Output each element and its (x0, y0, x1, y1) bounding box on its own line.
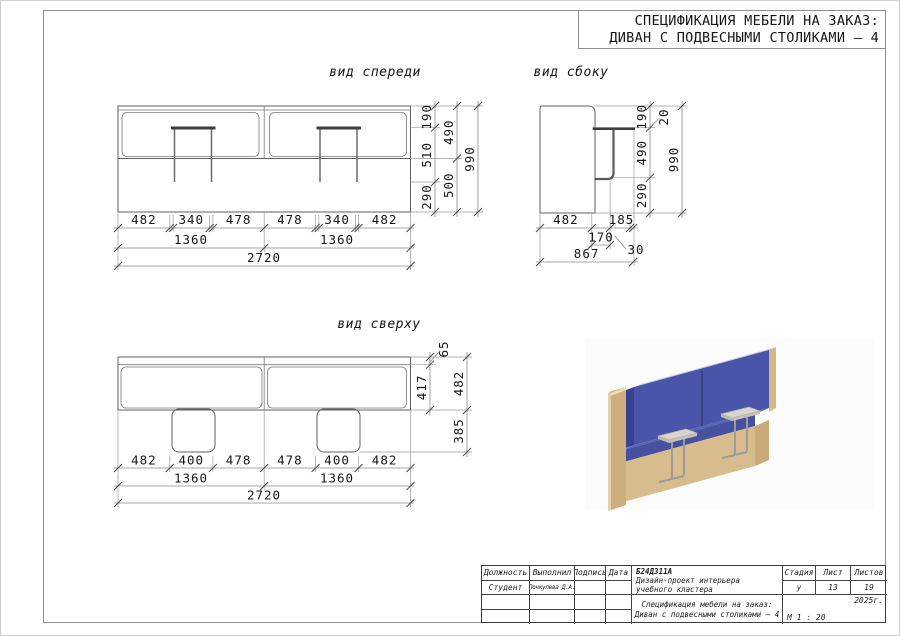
dim-label: 1360 (320, 232, 354, 247)
tb-empty-cell (606, 595, 632, 610)
dim-label: 30 (627, 242, 644, 257)
hanging-table-outline (317, 409, 360, 452)
dim-label: 400 (324, 453, 350, 468)
tb-header-date: Дата (606, 566, 632, 581)
dim-label: 417 (414, 375, 429, 401)
dim-label: 478 (226, 453, 252, 468)
hanging-table-top (593, 127, 635, 130)
dim-label: 482 (451, 371, 466, 397)
front-view-drawing (118, 106, 411, 212)
side-view: вид сбоку 190 20 490 290 990 482 185 170… (505, 55, 705, 285)
dim-label: 482 (372, 212, 398, 227)
dim-label: 867 (574, 246, 600, 261)
tb-sheet-title-cell: Спецификация мебели на заказ: Диван с по… (632, 595, 783, 624)
tb-name-value: Почкулева Д.А. (530, 581, 575, 596)
dim-label: 2720 (247, 488, 281, 503)
tb-project-cell: Б24Д311А Дизайн-проект интерьера учебног… (632, 566, 783, 595)
tb-header-stage: Стадия (783, 566, 816, 581)
front-view-dimensions: 190 510 290 490 500 990 482 340 478 478 … (114, 101, 483, 270)
dim-label: 340 (324, 212, 350, 227)
tb-date-value (606, 581, 632, 596)
tb-role-value: Студент (482, 581, 530, 596)
dim-label: 1360 (320, 471, 354, 486)
dim-label: 290 (634, 183, 649, 209)
hanging-table-top (317, 127, 362, 130)
sheet-title-line1: СПЕЦИФИКАЦИЯ МЕБЕЛИ НА ЗАКАЗ: (579, 13, 879, 30)
top-view-dimensions: 65 417 482 385 482 400 478 478 400 482 1… (114, 340, 472, 507)
title-block: Должность Выполнил Подпись Дата Студент … (481, 565, 886, 623)
dim-label: 500 (441, 172, 456, 198)
tb-header-signature: Подпись (575, 566, 606, 581)
dim-label: 482 (553, 212, 579, 227)
dim-label: 490 (634, 140, 649, 166)
tb-sheet-value: 13 (816, 581, 851, 596)
tb-sheet-title-line1: Спецификация мебели на заказ: (642, 600, 773, 610)
tb-header-executed: Выполнил (530, 566, 575, 581)
drawing-sheet: { "sheet": { "title_line1": "СПЕЦИФИКАЦИ… (0, 0, 900, 636)
dim-label: 190 (634, 104, 649, 130)
side-view-label: вид сбоку (534, 65, 609, 80)
tb-doc-code: Б24Д311А (636, 567, 672, 576)
hanging-table-top (171, 127, 216, 130)
dim-label: 1360 (174, 232, 208, 247)
tb-empty-cell (575, 595, 606, 610)
dim-label: 65 (436, 340, 451, 357)
dim-label: 1360 (174, 471, 208, 486)
dim-label: 20 (656, 108, 671, 125)
tb-year: 2025г. (854, 596, 883, 605)
tb-header-role: Должность (482, 566, 530, 581)
tb-empty-cell (530, 595, 575, 610)
tb-sheets-value: 19 (851, 581, 887, 596)
front-view: вид спереди 190 510 290 490 500 990 482 … (100, 55, 495, 285)
dim-label: 185 (609, 212, 635, 227)
side-view-dimensions: 190 20 490 290 990 482 185 170 30 867 (536, 101, 687, 266)
side-view-drawing (540, 106, 635, 213)
dim-label: 190 (419, 104, 434, 130)
sheet-title-box: СПЕЦИФИКАЦИЯ МЕБЕЛИ НА ЗАКАЗ: ДИВАН С ПО… (578, 11, 885, 49)
tb-empty-cell (530, 610, 575, 625)
tb-empty-cell (482, 595, 530, 610)
dim-label: 490 (441, 119, 456, 145)
tb-stage-value: у (783, 581, 816, 596)
tb-project-name: Дизайн-проект интерьера учебного кластер… (636, 576, 778, 594)
dim-label: 170 (588, 230, 614, 245)
tb-empty-cell (606, 610, 632, 625)
dim-label: 482 (131, 212, 157, 227)
top-view: вид сверху 65 417 482 385 482 400 478 47… (100, 310, 495, 515)
sheet-title-line2: ДИВАН С ПОДВЕСНЫМИ СТОЛИКАМИ – 4 (579, 30, 879, 47)
dim-label: 478 (226, 212, 252, 227)
front-view-label: вид спереди (329, 65, 421, 80)
tb-sheet-title-line2: Диван с подвесными столиками – 4 (635, 610, 780, 620)
hanging-table-outline (172, 409, 215, 452)
tb-header-sheets: Листов (851, 566, 887, 581)
top-view-label: вид сверху (337, 317, 420, 332)
table-leg (595, 130, 614, 179)
sofa-3d-render (580, 330, 890, 515)
dim-label: 400 (179, 453, 205, 468)
dim-label: 340 (179, 212, 205, 227)
tb-header-sheet: Лист (816, 566, 851, 581)
dim-label: 290 (419, 184, 434, 210)
tb-year-scale-cell: 2025г. М 1 : 20 (783, 595, 887, 624)
tb-empty-cell (482, 610, 530, 625)
dim-label: 482 (372, 453, 398, 468)
dim-label: 478 (277, 212, 303, 227)
tb-signature-value (575, 581, 606, 596)
dim-label: 990 (666, 147, 681, 173)
dim-label: 482 (131, 453, 157, 468)
dim-label: 385 (451, 418, 466, 444)
dim-label: 2720 (247, 250, 281, 265)
dim-label: 990 (462, 146, 477, 172)
tb-scale: М 1 : 20 (787, 613, 826, 622)
tb-empty-cell (575, 610, 606, 625)
dim-label: 510 (419, 142, 434, 168)
dim-label: 478 (277, 453, 303, 468)
